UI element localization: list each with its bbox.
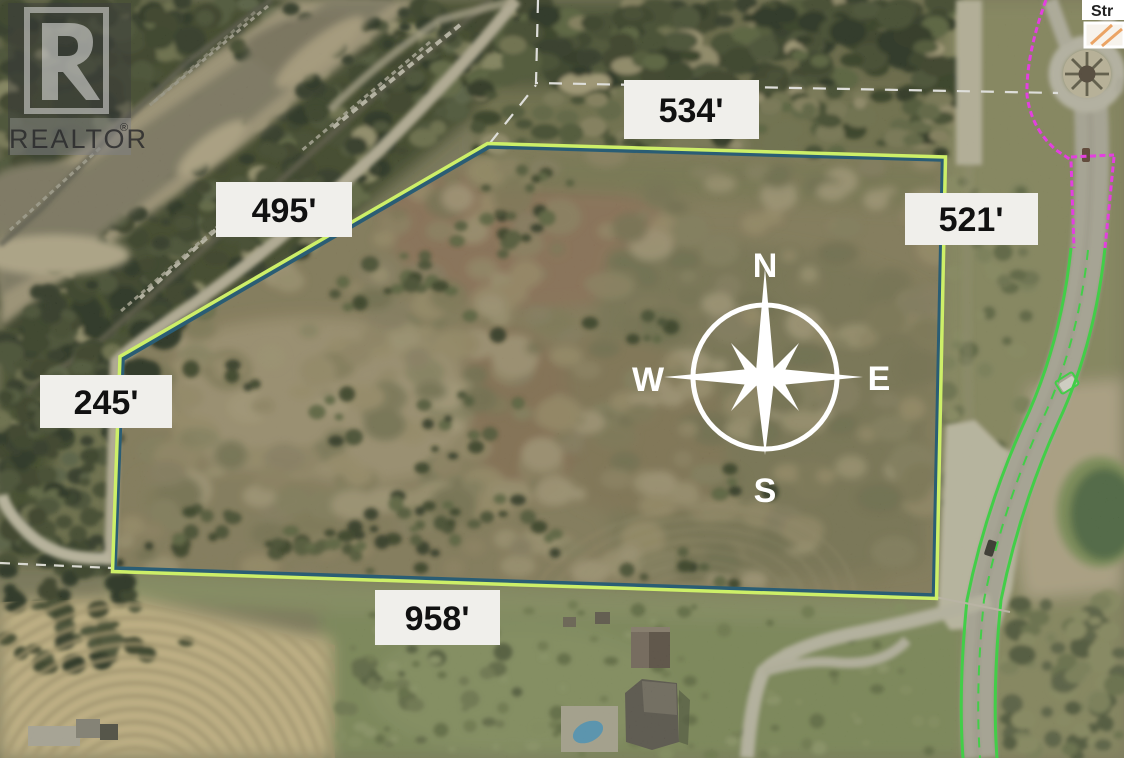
svg-text:958': 958' [405,600,470,638]
svg-text:S: S [754,472,777,510]
svg-text:521': 521' [939,201,1004,239]
svg-text:495': 495' [252,192,317,230]
svg-text:®: ® [120,122,128,134]
svg-text:534': 534' [659,92,724,130]
svg-text:E: E [868,360,891,398]
svg-text:245': 245' [74,384,139,422]
svg-text:N: N [753,247,778,285]
svg-text:W: W [632,361,665,399]
svg-text:Str: Str [1091,3,1113,20]
